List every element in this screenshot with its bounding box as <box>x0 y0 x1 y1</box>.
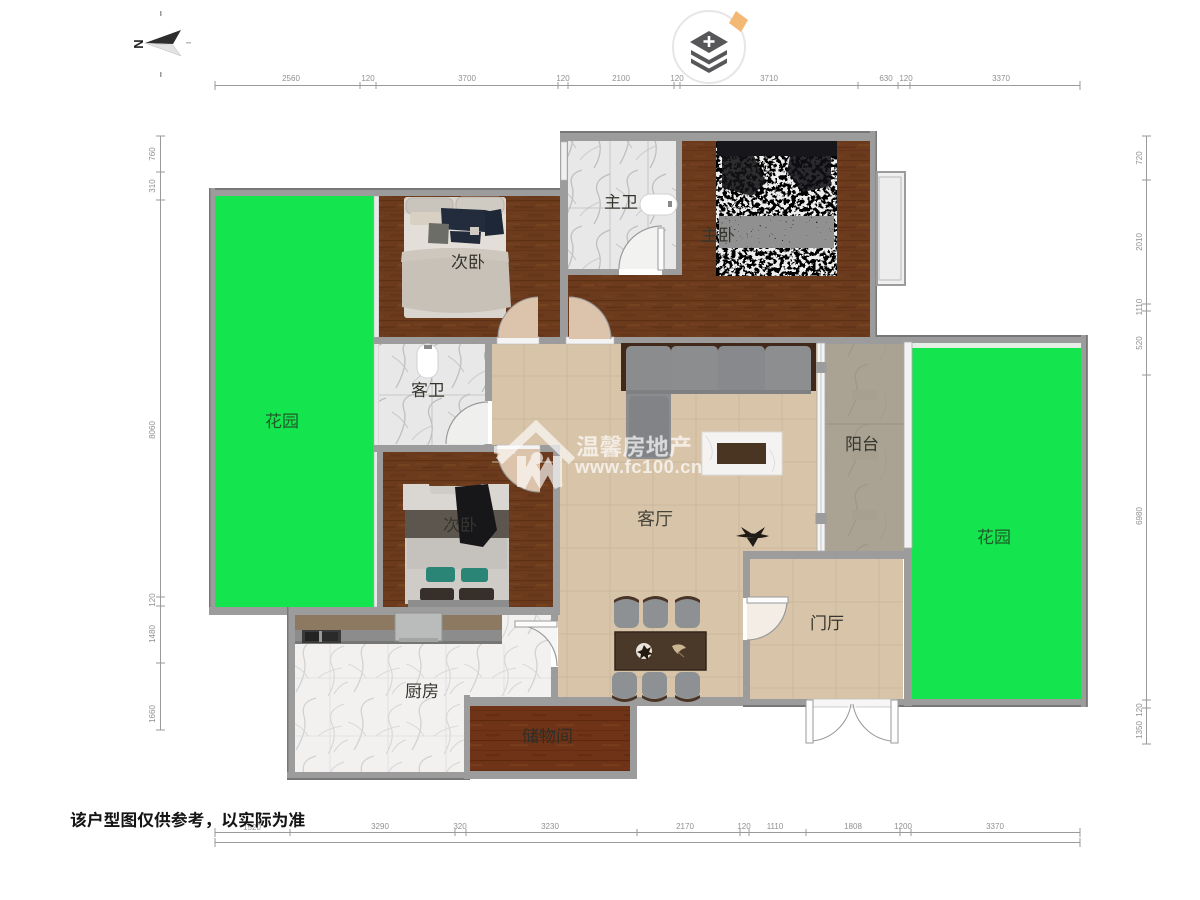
svg-text:1660: 1660 <box>148 705 157 723</box>
svg-text:120: 120 <box>556 74 570 83</box>
svg-text:120: 120 <box>148 593 157 607</box>
svg-text:1480: 1480 <box>148 625 157 643</box>
svg-text:320: 320 <box>453 822 467 831</box>
svg-text:630: 630 <box>879 74 893 83</box>
svg-text:120: 120 <box>899 74 913 83</box>
svg-text:1110: 1110 <box>1135 298 1144 315</box>
svg-text:N: N <box>131 39 146 48</box>
svg-text:3370: 3370 <box>992 74 1010 83</box>
svg-text:1350: 1350 <box>1135 721 1144 739</box>
svg-text:3290: 3290 <box>371 822 389 831</box>
svg-text:120: 120 <box>670 74 684 83</box>
svg-text:720: 720 <box>1135 151 1144 165</box>
svg-text:www.fc100.cn: www.fc100.cn <box>574 456 703 477</box>
svg-text:760: 760 <box>148 147 157 161</box>
svg-text:2100: 2100 <box>612 74 630 83</box>
svg-text:1200: 1200 <box>894 822 912 831</box>
svg-text:120: 120 <box>737 822 751 831</box>
svg-text:3230: 3230 <box>541 822 559 831</box>
svg-text:520: 520 <box>1135 336 1144 350</box>
svg-text:2170: 2170 <box>676 822 694 831</box>
svg-text:6980: 6980 <box>1135 507 1144 525</box>
svg-text:8060: 8060 <box>148 421 157 439</box>
svg-text:2560: 2560 <box>282 74 300 83</box>
svg-text:1110: 1110 <box>767 822 784 831</box>
svg-text:3710: 3710 <box>760 74 778 83</box>
svg-text:310: 310 <box>148 179 157 193</box>
svg-text:3370: 3370 <box>986 822 1004 831</box>
svg-text:120: 120 <box>1135 703 1144 717</box>
svg-text:1808: 1808 <box>844 822 862 831</box>
svg-text:2010: 2010 <box>1135 233 1144 251</box>
svg-text:120: 120 <box>361 74 375 83</box>
svg-text:3700: 3700 <box>458 74 476 83</box>
